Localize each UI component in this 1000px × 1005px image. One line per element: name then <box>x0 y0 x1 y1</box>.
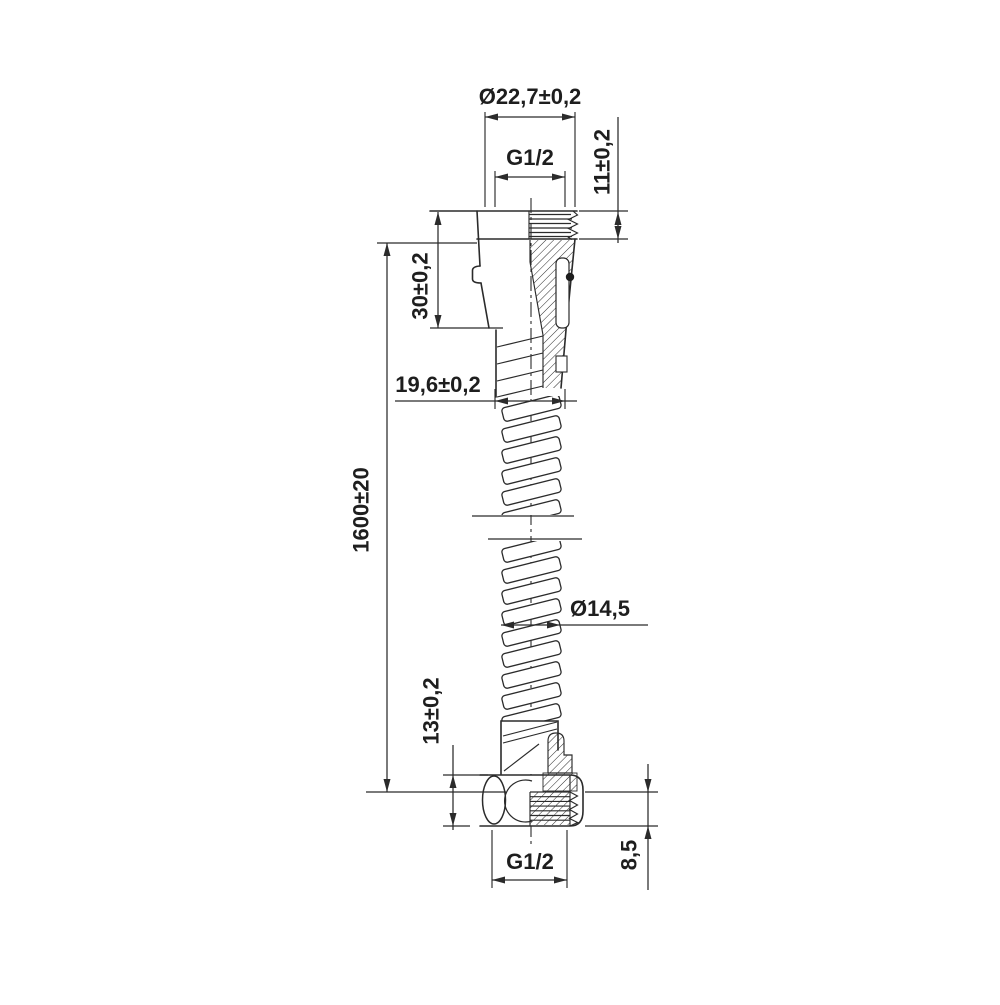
label-overall-length: 1600±20 <box>349 467 374 553</box>
label-bottom-thread-length: 8,5 <box>617 840 642 871</box>
dim-top-thread: G1/2 <box>495 145 565 207</box>
dim-top-thread-length: 11±0,2 <box>579 117 628 243</box>
label-bottom-fitting-height: 13±0,2 <box>419 677 444 744</box>
top-ferrule <box>496 330 543 397</box>
label-hose-diameter: Ø14,5 <box>570 596 630 621</box>
top-cone-left-edge-lower <box>481 283 489 328</box>
break-lines <box>472 516 582 539</box>
top-thread-section <box>529 211 578 240</box>
top-fitting <box>430 211 578 397</box>
bottom-stem-section <box>548 733 572 773</box>
top-cone-grip-ridge <box>473 266 482 283</box>
label-top-thread-length: 11±0,2 <box>590 129 615 195</box>
top-thread-crest-zigzag <box>569 211 578 240</box>
bottom-nut-mouth <box>483 776 506 824</box>
dim-top-fitting-length: 30±0,2 <box>408 212 442 328</box>
hose-lower-section <box>501 535 562 731</box>
sleeve-latch-notch <box>556 356 567 372</box>
hose-technical-drawing: Ø22,7±0,2 G1/2 11±0,2 30±0,2 19,6±0,2 <box>0 0 1000 1000</box>
bottom-fitting <box>480 721 583 826</box>
dim-bottom-thread: G1/2 <box>492 830 567 888</box>
label-top-thread: G1/2 <box>506 145 554 170</box>
seal-dot <box>566 273 574 281</box>
label-bottom-thread: G1/2 <box>506 849 554 874</box>
label-top-outer-diameter: Ø22,7±0,2 <box>479 84 582 109</box>
dim-bottom-fitting-height: 13±0,2 <box>419 677 489 830</box>
bottom-flange-section <box>543 773 577 791</box>
dim-bottom-thread-length: 8,5 <box>585 764 658 890</box>
label-top-fitting-length: 30±0,2 <box>408 252 433 319</box>
drawing-page: Ø22,7±0,2 G1/2 11±0,2 30±0,2 19,6±0,2 <box>0 0 1000 1000</box>
label-ferrule-diameter: 19,6±0,2 <box>395 372 480 397</box>
inner-sleeve <box>556 258 569 328</box>
